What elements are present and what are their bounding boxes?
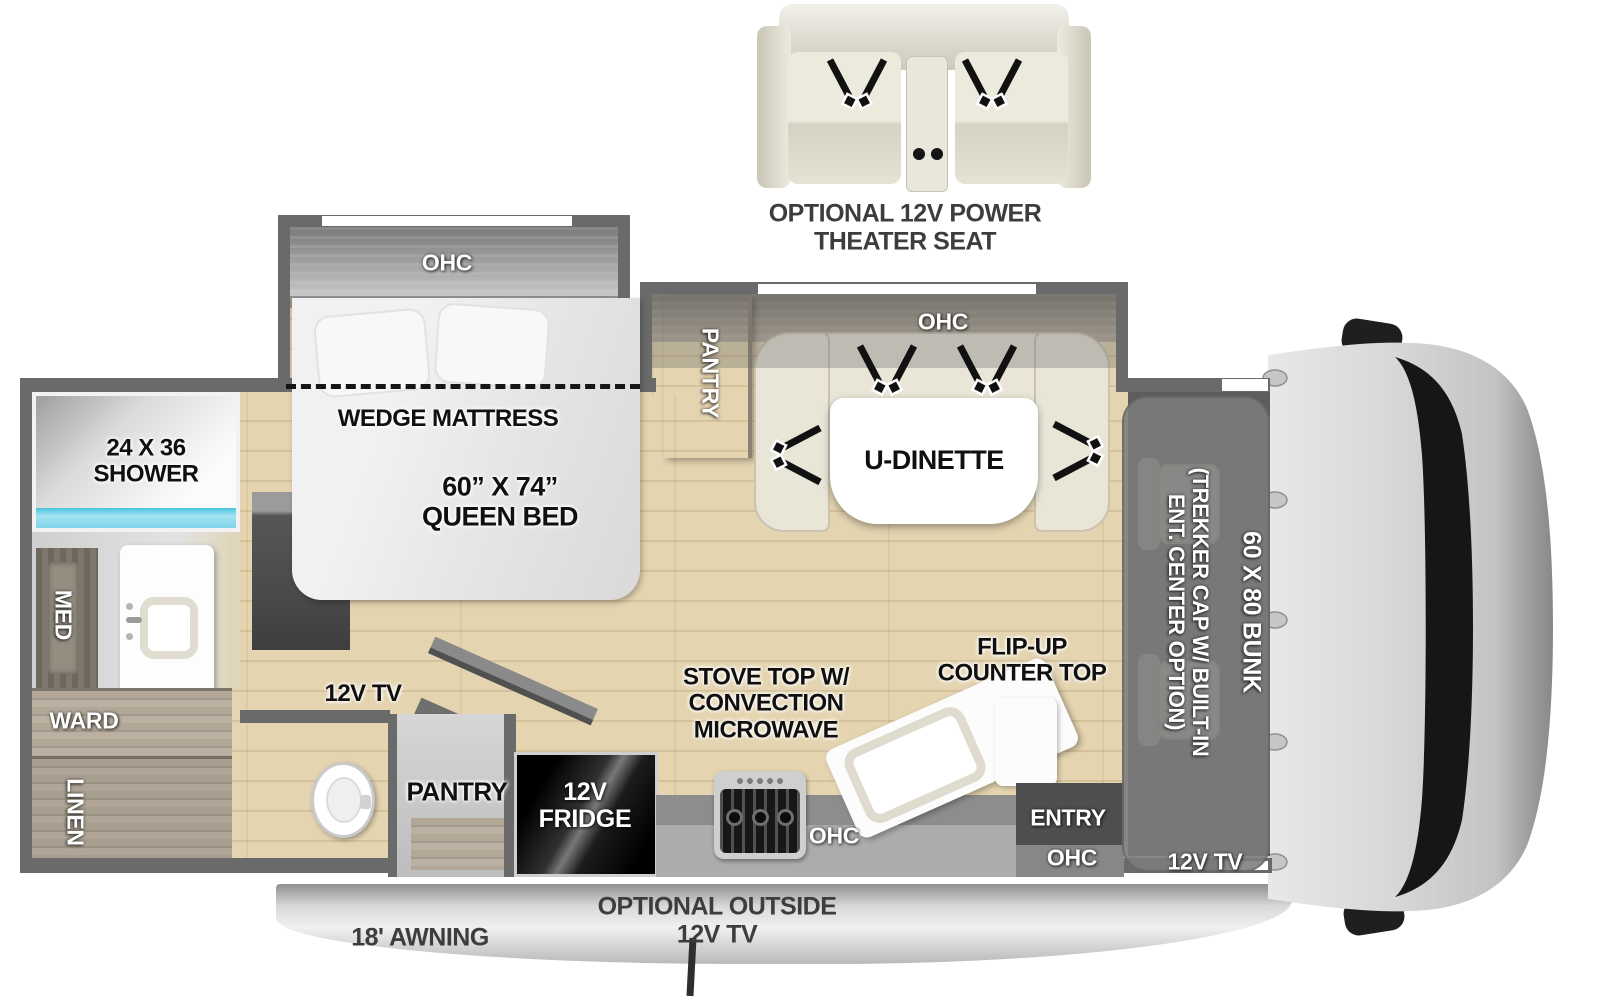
shower-label: 24 X 36 SHOWER (94, 436, 199, 489)
window-strip (758, 284, 1036, 294)
cab-tv-label: 12V TV (1168, 850, 1243, 875)
pantry-shelves (411, 818, 509, 870)
stove-label: STOVE TOP W/ CONVECTION MICROWAVE (683, 664, 849, 743)
linen-label: LINEN (63, 778, 88, 846)
dinette-slide-wall (640, 282, 652, 392)
cab-front (1262, 315, 1562, 940)
faucet-icon (126, 617, 142, 623)
seatbelt-icon (955, 56, 1029, 114)
window-strip (322, 216, 572, 226)
burner-icon (752, 809, 769, 826)
seatbelt-icon (1050, 414, 1108, 488)
bedroom-slide-wall (278, 215, 290, 392)
burner-icon (777, 809, 794, 826)
sink-icon (140, 597, 198, 659)
entry-label: ENTRY (1030, 806, 1106, 831)
fridge-label: 12V FRIDGE (539, 779, 632, 833)
wedge-mattress-label: WEDGE MATTRESS (338, 406, 559, 432)
dinette-pantry-label: PANTRY (698, 328, 723, 418)
dinette-ohc-label: OHC (918, 310, 968, 335)
seatbelt-icon (766, 418, 824, 492)
pillow (433, 302, 550, 390)
toilet-bowl (326, 777, 362, 823)
faucet-icon (126, 603, 133, 610)
bunk-label: 60 X 80 BUNK (1238, 531, 1265, 693)
flip-up-counter-end (995, 698, 1057, 786)
entry-ohc-label: OHC (1047, 846, 1097, 871)
kitchen-pantry-label: PANTRY (407, 778, 508, 807)
outside-tv-label: OPTIONAL OUTSIDE 12V TV (598, 894, 837, 949)
seatbelt-icon (850, 342, 924, 400)
u-dinette-label: U-DINETTE (864, 446, 1004, 476)
stove-knobs (736, 777, 784, 785)
living-tv-label: 12V TV (324, 681, 401, 707)
theater-seat-caption: OPTIONAL 12V POWER THEATER SEAT (769, 201, 1042, 256)
awning-label: 18' AWNING (351, 924, 489, 952)
kitchen-ohc-label: OHC (809, 824, 859, 849)
kitchen-counter-back (656, 795, 1016, 825)
shower-water (36, 508, 236, 528)
wall-top-left (20, 378, 292, 392)
toilet-room-wall (240, 710, 390, 723)
toilet-fixture (311, 762, 375, 838)
bath-vanity (120, 545, 214, 697)
med-label: MED (51, 590, 76, 640)
trekker-option-label: (TREKKER CAP W/ BUILT-IN ENT. CENTER OPT… (1164, 468, 1212, 757)
wedge-dashed-line (286, 384, 640, 389)
theater-console (906, 56, 948, 192)
cupholder-icon (913, 148, 925, 160)
window-strip (1222, 379, 1268, 391)
toilet-button (360, 795, 371, 809)
flip-up-counter-label: FLIP-UP COUNTER TOP (938, 635, 1107, 688)
burner-icon (726, 809, 743, 826)
dinette-slide-wall (1116, 282, 1128, 392)
seatbelt-icon (820, 56, 894, 114)
seatbelt-icon (950, 342, 1024, 400)
ward-label: WARD (49, 709, 118, 734)
theater-seat-graphic (755, 4, 1093, 196)
queen-bed-label: 60” X 74” QUEEN BED (422, 472, 578, 531)
stove-icon (714, 771, 806, 859)
cupholder-icon (931, 148, 943, 160)
bedroom-ohc-label: OHC (422, 251, 472, 276)
cab-body (1268, 343, 1553, 912)
faucet-icon (126, 633, 133, 640)
theater-arm (757, 26, 791, 188)
rv-floorplan: OPTIONAL 12V POWER THEATER SEAT OHC WEDG… (0, 0, 1600, 1002)
